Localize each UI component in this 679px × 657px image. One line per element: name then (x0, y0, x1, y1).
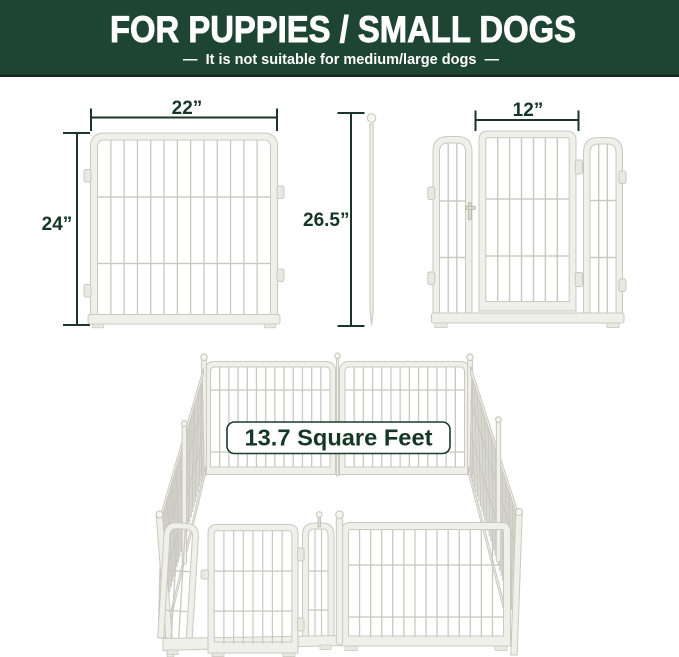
svg-text:12”: 12” (513, 100, 544, 121)
svg-text:— It is not suitable for medi: — It is not suitable for medium/large do… (183, 52, 499, 68)
svg-text:24”: 24” (42, 214, 73, 235)
svg-text:13.7 Square Feet: 13.7 Square Feet (245, 425, 433, 451)
svg-text:FOR PUPPIES / SMALL DOGS: FOR PUPPIES / SMALL DOGS (110, 9, 576, 50)
svg-text:22”: 22” (172, 98, 203, 119)
svg-text:26.5”: 26.5” (303, 210, 349, 231)
